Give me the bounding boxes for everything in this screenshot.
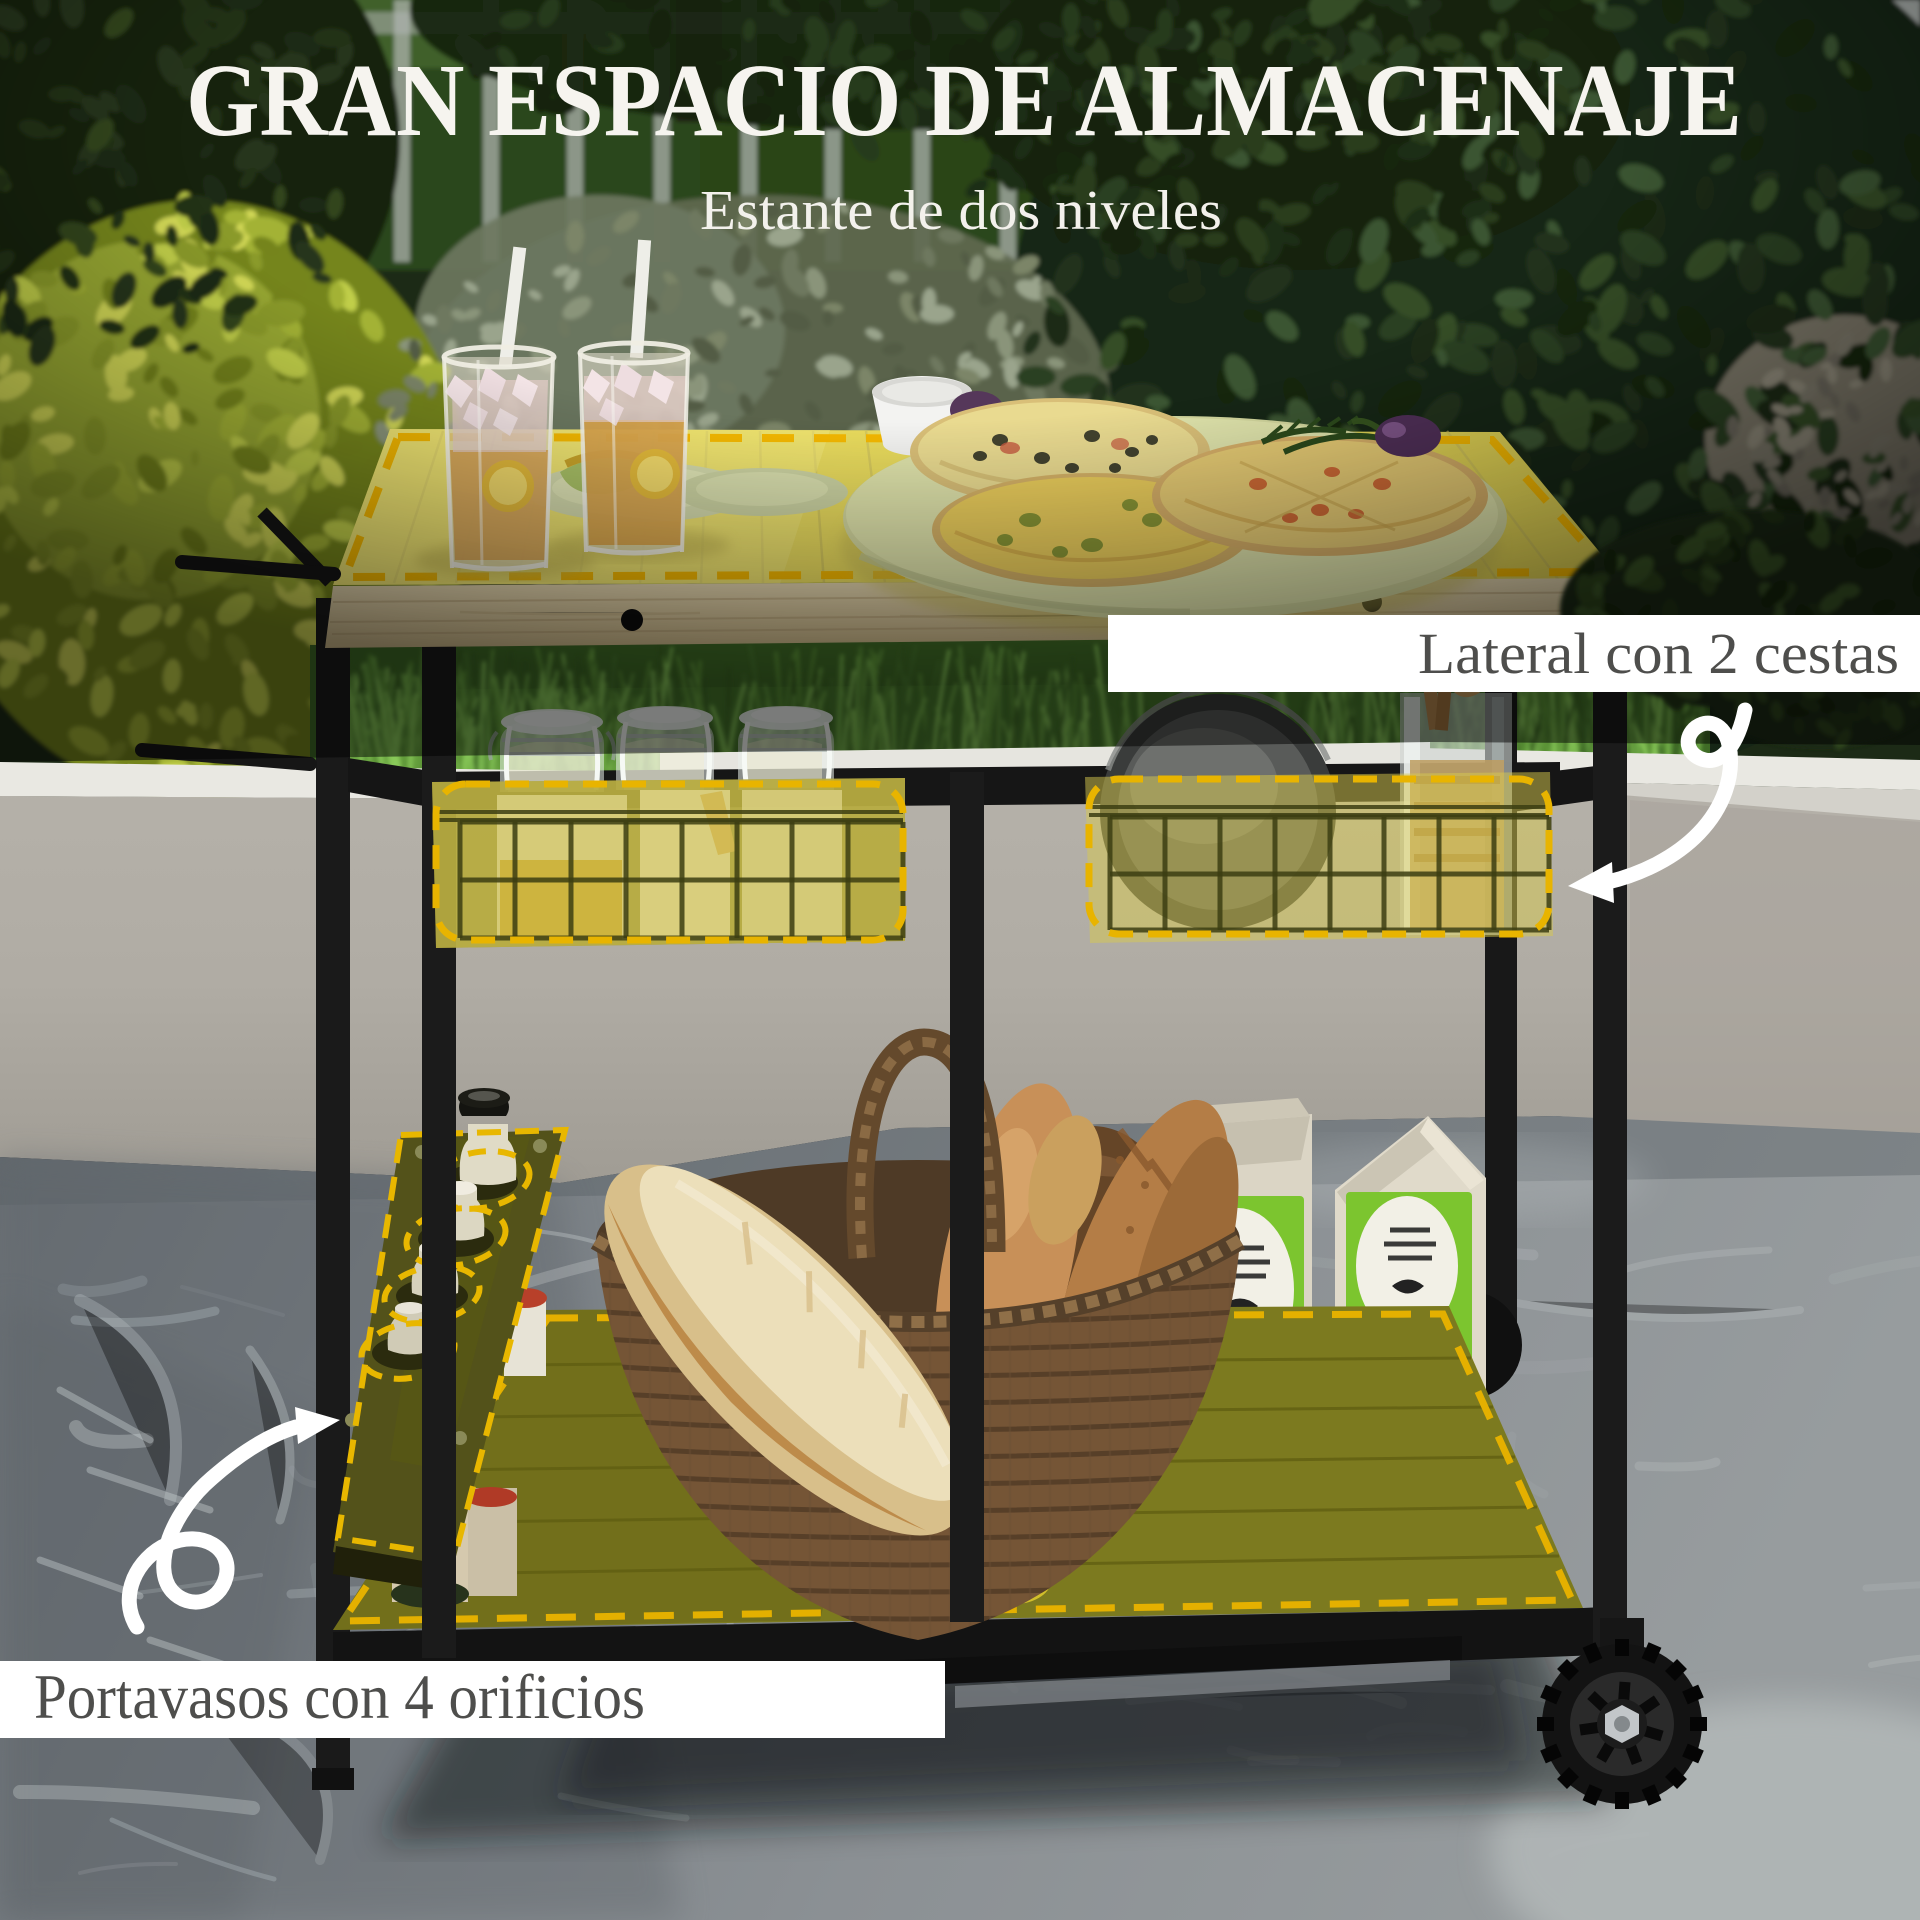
svg-text:Lateral con 2 cestas: Lateral con 2 cestas xyxy=(1418,621,1899,686)
svg-text:GRAN ESPACIO DE ALMACENAJE: GRAN ESPACIO DE ALMACENAJE xyxy=(186,43,1742,158)
svg-text:Estante de dos niveles: Estante de dos niveles xyxy=(700,180,1222,242)
svg-text:Portavasos con 4 orificios: Portavasos con 4 orificios xyxy=(34,1662,645,1732)
